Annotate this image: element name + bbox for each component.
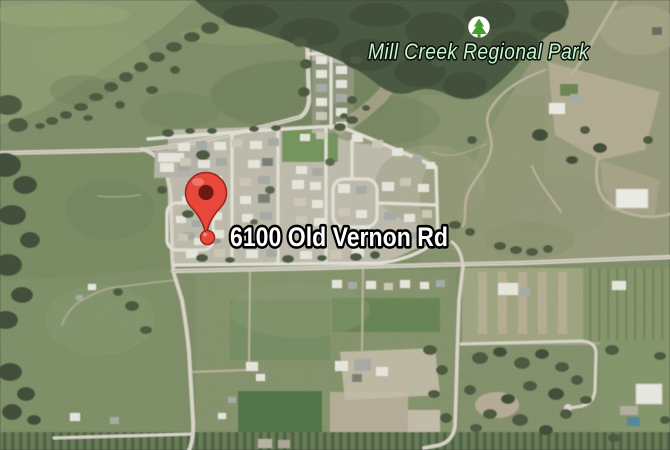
satellite-map[interactable]: Mill Creek Regional Park 6100 Old Vernon… xyxy=(0,0,670,450)
pin-highlight xyxy=(192,178,204,186)
pin-hole xyxy=(198,185,213,200)
pin-base-ball xyxy=(201,231,215,245)
park-tree-icon[interactable] xyxy=(468,16,490,38)
map-canvas[interactable]: Mill Creek Regional Park 6100 Old Vernon… xyxy=(0,0,670,450)
pin-ball-highlight xyxy=(203,233,207,237)
address-label: 6100 Old Vernon Rd xyxy=(230,222,448,252)
park-label: Mill Creek Regional Park xyxy=(368,39,589,64)
